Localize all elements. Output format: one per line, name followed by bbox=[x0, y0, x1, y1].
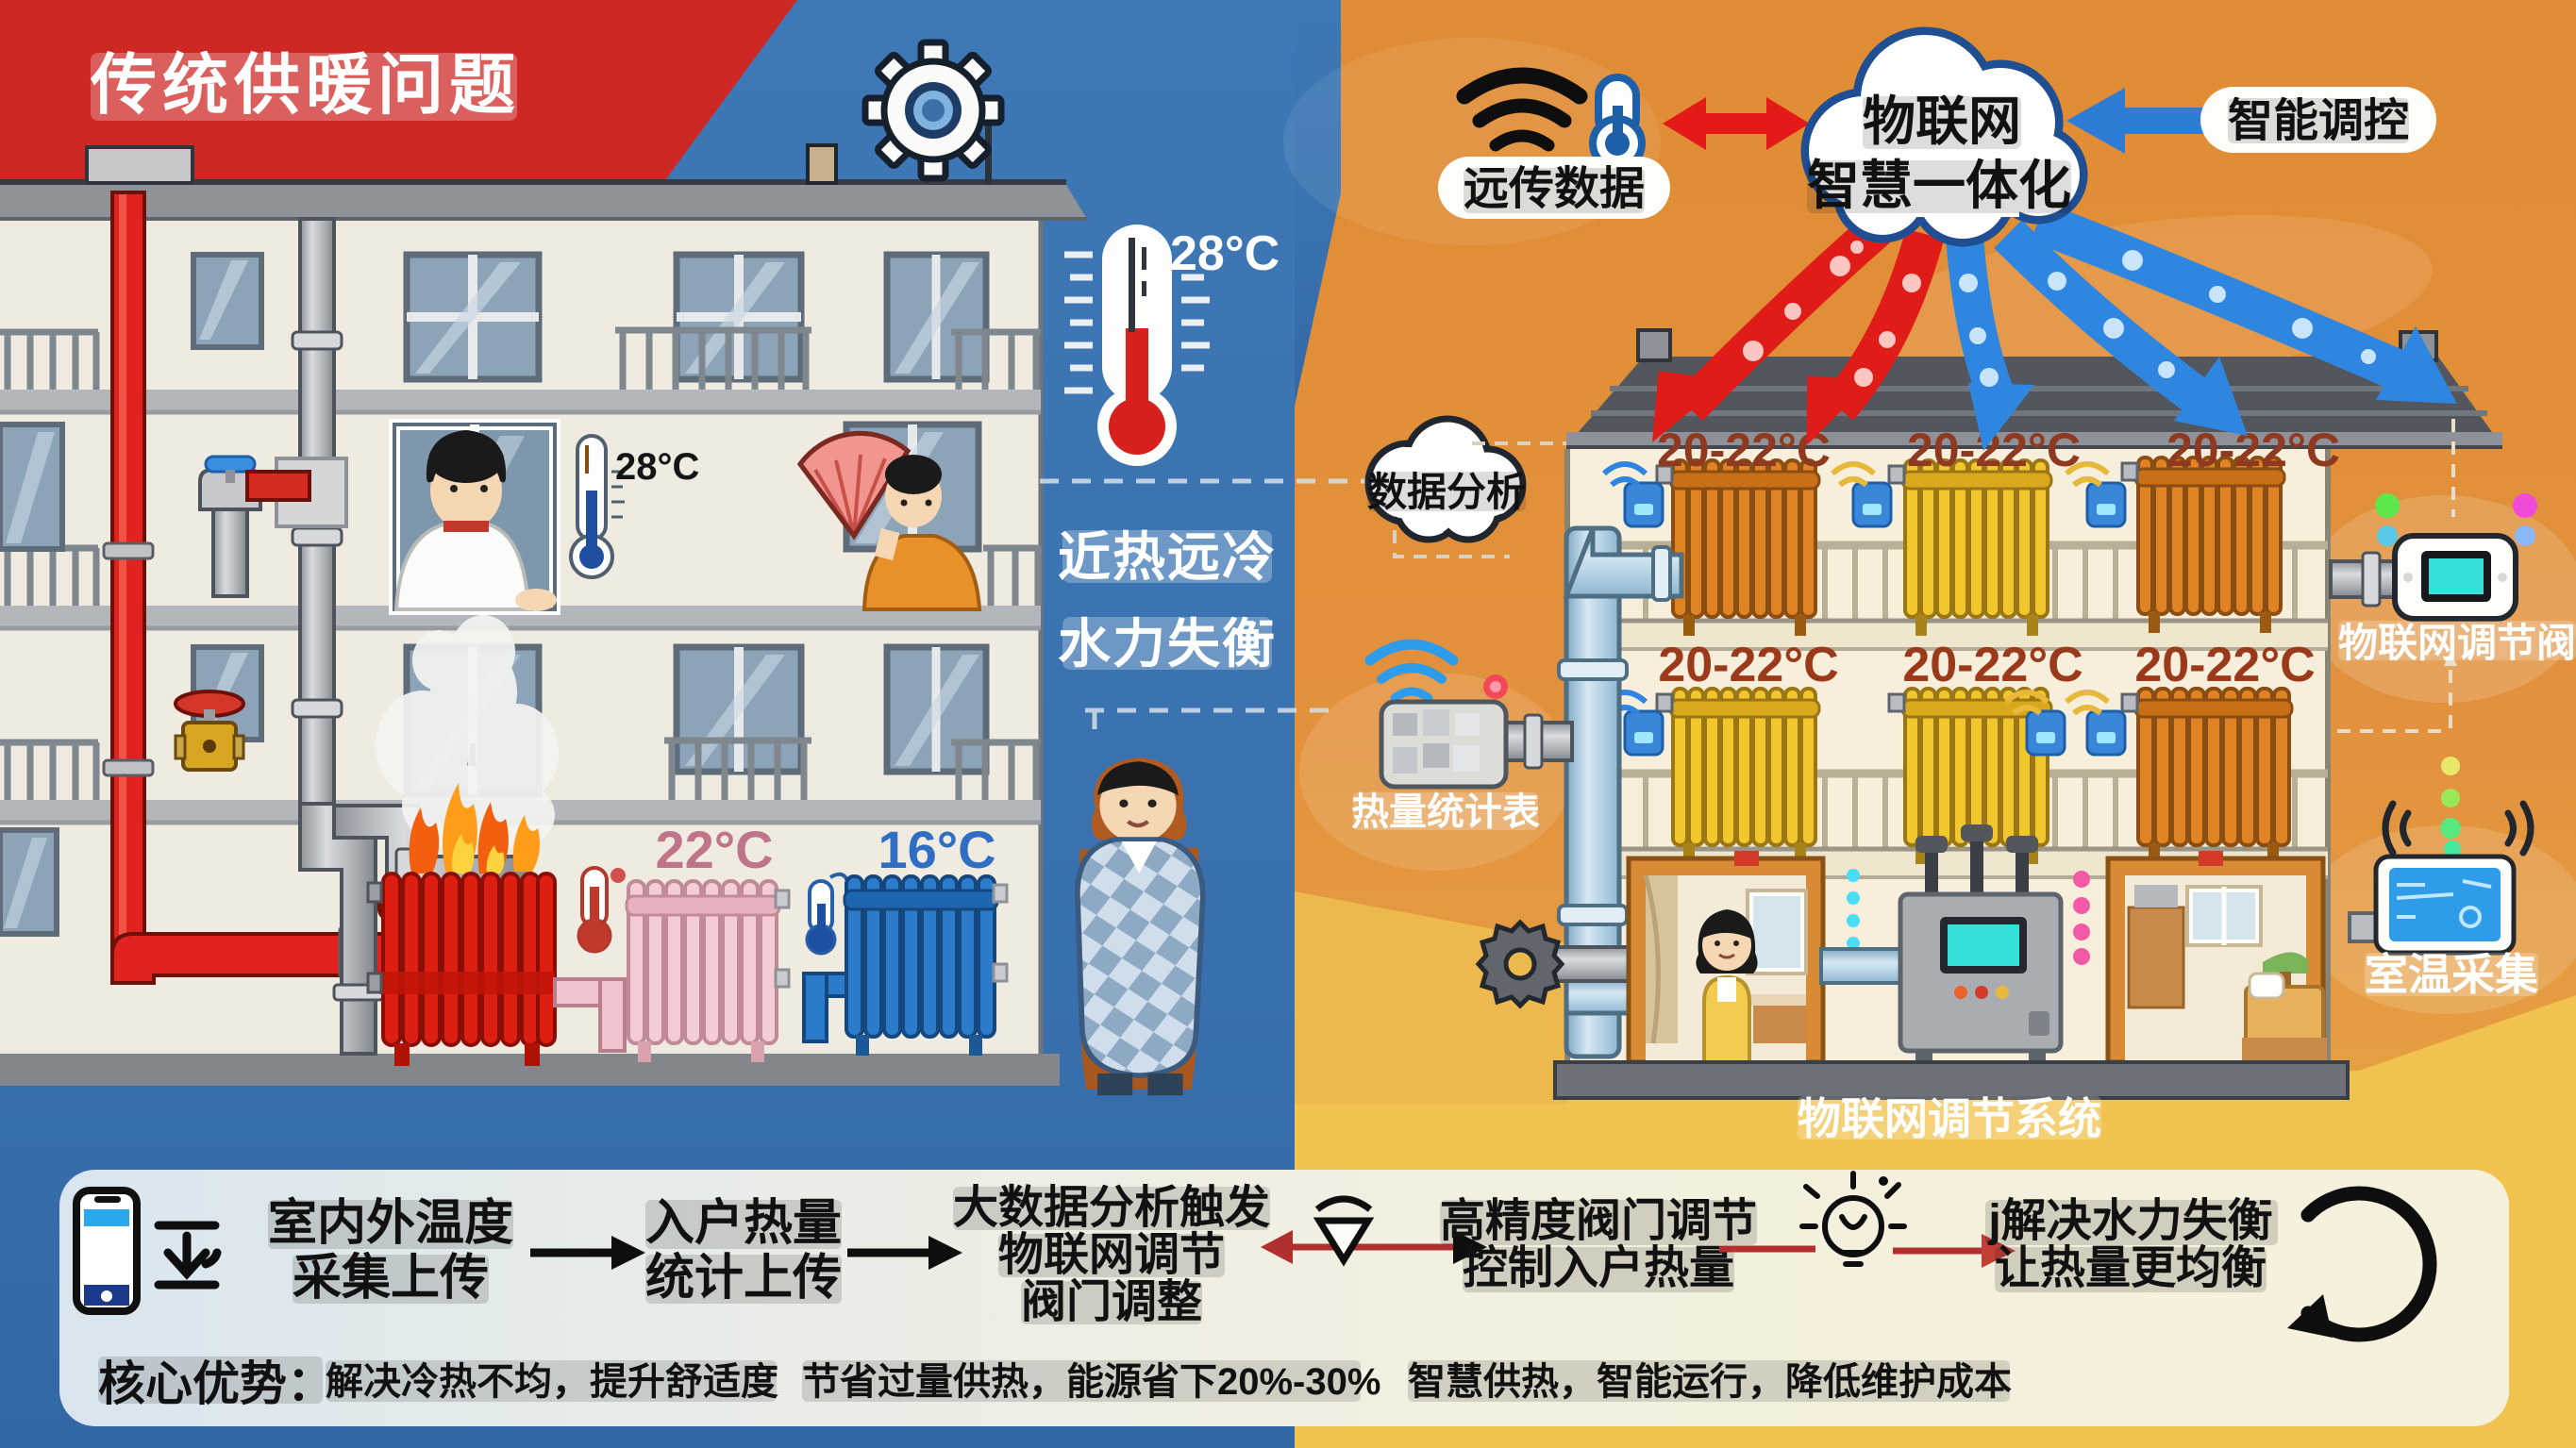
svg-text:22°C: 22°C bbox=[655, 820, 773, 879]
svg-text:16°C: 16°C bbox=[878, 820, 995, 879]
svg-text:智慧供热，智能运行，降低维护成本: 智慧供热，智能运行，降低维护成本 bbox=[1408, 1361, 2012, 1403]
svg-text:节省过量供热，能源省下20%-30%: 节省过量供热，能源省下20%-30% bbox=[802, 1361, 1380, 1403]
svg-text:物联网调节系统: 物联网调节系统 bbox=[1798, 1094, 2101, 1143]
svg-text:阀门调整: 阀门调整 bbox=[1021, 1277, 1202, 1327]
svg-text:智慧一体化: 智慧一体化 bbox=[1807, 156, 2071, 215]
svg-text:物联网调节阀: 物联网调节阀 bbox=[2338, 621, 2576, 665]
svg-text:大数据分析触发: 大数据分析触发 bbox=[953, 1183, 1270, 1233]
svg-text:热量统计表: 热量统计表 bbox=[1351, 791, 1540, 833]
svg-text:核心优势：: 核心优势： bbox=[98, 1357, 334, 1410]
svg-text:入户热量: 入户热量 bbox=[645, 1196, 842, 1251]
svg-text:水力失衡: 水力失衡 bbox=[1058, 614, 1277, 674]
svg-text:j解决水力失衡: j解决水力失衡 bbox=[1987, 1196, 2272, 1246]
svg-text:智能调控: 智能调控 bbox=[2228, 96, 2409, 146]
svg-text:20-22°C: 20-22°C bbox=[1658, 638, 1838, 692]
svg-text:物联网调节: 物联网调节 bbox=[998, 1230, 1225, 1280]
svg-text:室温采集: 室温采集 bbox=[2365, 950, 2538, 999]
svg-text:高精度阀门调节: 高精度阀门调节 bbox=[1440, 1196, 1757, 1246]
svg-text:28°C: 28°C bbox=[1170, 226, 1280, 281]
svg-text:数据分析: 数据分析 bbox=[1367, 470, 1526, 514]
svg-text:远传数据: 远传数据 bbox=[1464, 164, 1645, 214]
svg-text:传统供暖问题: 传统供暖问题 bbox=[90, 48, 521, 122]
svg-text:20-22°C: 20-22°C bbox=[1657, 424, 1831, 476]
svg-text:采集上传: 采集上传 bbox=[293, 1251, 489, 1306]
svg-text:物联网: 物联网 bbox=[1863, 92, 2021, 151]
svg-text:20-22°C: 20-22°C bbox=[2166, 424, 2340, 476]
svg-text:28°C: 28°C bbox=[615, 446, 699, 488]
svg-text:让热量更均衡: 让热量更均衡 bbox=[1995, 1243, 2267, 1293]
svg-text:近热远冷: 近热远冷 bbox=[1058, 527, 1277, 587]
svg-text:20-22°C: 20-22°C bbox=[2134, 638, 2315, 692]
svg-text:20-22°C: 20-22°C bbox=[1902, 638, 2083, 692]
svg-text:控制入户热量: 控制入户热量 bbox=[1463, 1243, 1734, 1293]
svg-text:室内外温度: 室内外温度 bbox=[268, 1196, 513, 1251]
svg-text:解决冷热不均，提升舒适度: 解决冷热不均，提升舒适度 bbox=[326, 1361, 778, 1403]
svg-text:统计上传: 统计上传 bbox=[645, 1251, 842, 1306]
